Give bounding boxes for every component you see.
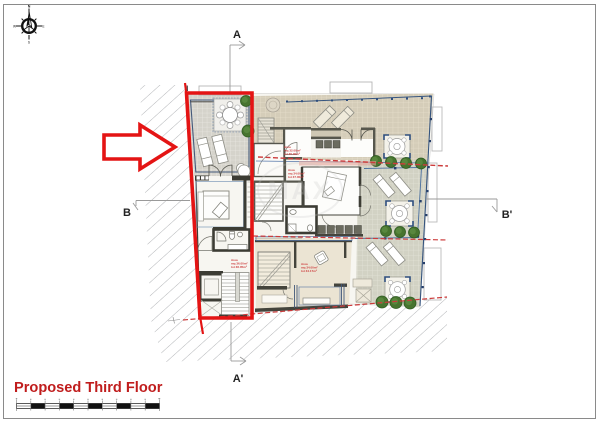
svg-text:N: N <box>28 5 31 9</box>
svg-text:E: E <box>42 25 44 29</box>
svg-text:tot 34.17m²: tot 34.17m² <box>301 269 317 273</box>
svg-text:S: S <box>28 41 30 45</box>
svg-text:A: A <box>233 29 241 41</box>
svg-text:B: B <box>123 207 131 219</box>
svg-text:MAX: MAX <box>268 177 333 205</box>
svg-text:W: W <box>13 25 16 29</box>
svg-text:A': A' <box>233 373 244 385</box>
svg-text:tot 36.05m²: tot 36.05m² <box>231 265 247 269</box>
svg-text:Proposed Third Floor: Proposed Third Floor <box>14 380 163 396</box>
svg-text:B': B' <box>502 209 513 221</box>
svg-text:tot 35.00m²: tot 35.00m² <box>284 152 300 156</box>
